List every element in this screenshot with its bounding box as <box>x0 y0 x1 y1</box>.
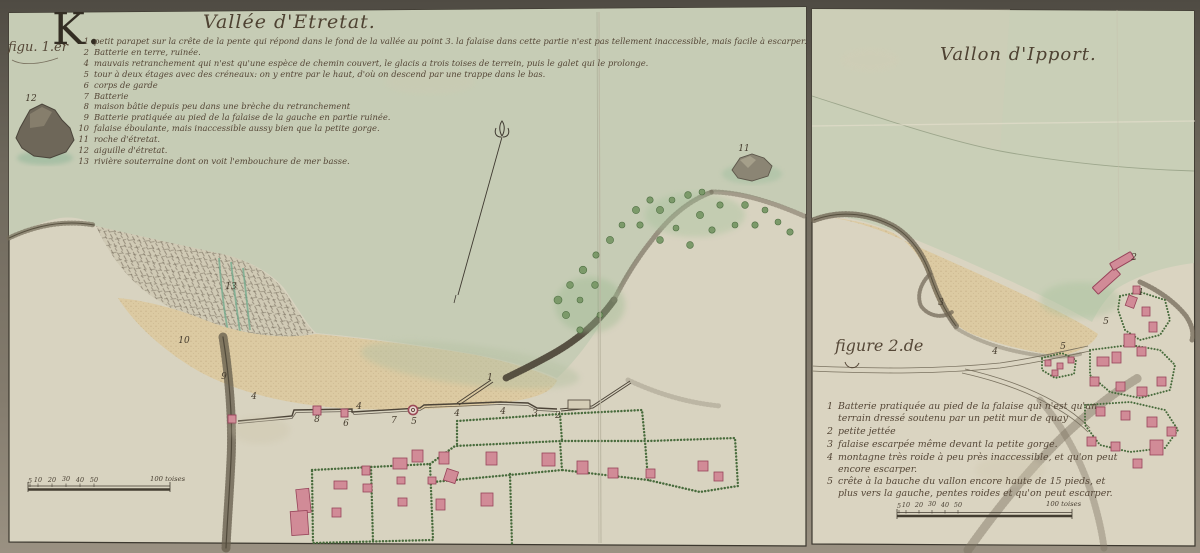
legend-item: 7Batterie <box>74 91 764 102</box>
legend-item: 1petit parapet sur la crête de la pente … <box>74 36 764 47</box>
scale-tick-label: 10 <box>902 501 910 509</box>
map-point-label: 6 <box>343 419 349 429</box>
figure2-label: figure 2.de <box>835 336 923 355</box>
map-point-label: 12 <box>25 94 36 104</box>
map-photograph: K. figu. 1.er Vallée d'Etretat. Vallon d… <box>0 0 1200 553</box>
legend-item: 10falaise éboulante, mais inaccessible a… <box>74 123 764 134</box>
map-point-label: 1 <box>487 373 493 383</box>
map-point-label: 9 <box>221 372 227 382</box>
map-point-label: 7 <box>391 416 397 426</box>
legend-item: 11roche d'étretat. <box>74 134 764 145</box>
map-point-label: 5 <box>411 417 417 427</box>
map-point-label: 5 <box>1103 317 1109 327</box>
legend-item: 5crête à la bauche du vallon encore haut… <box>822 476 1124 500</box>
scale-tick-label: 50 <box>90 476 98 484</box>
right-map-title: Vallon d'Ipport. <box>940 44 1097 65</box>
scale-end-label: 100 toises <box>150 475 185 483</box>
legend-item: 4mauvais retranchement qui n'est qu'une … <box>74 58 764 69</box>
scale-end-label: 100 toises <box>1046 500 1081 508</box>
legend-item: 4montagne très roide à peu près inaccess… <box>822 452 1124 476</box>
map-point-label: 5 <box>1060 342 1066 352</box>
scale-tick-label: 20 <box>48 476 56 484</box>
scale-tick-label: 20 <box>915 501 923 509</box>
scale-tick-label: 5 <box>28 477 32 485</box>
legend-item: 9Batterie pratiquée au pied de la falais… <box>74 112 764 123</box>
tower-5 <box>408 405 417 414</box>
map-point-label: 3 <box>938 298 944 308</box>
map-point-label: 10 <box>178 336 189 346</box>
scale-tick-label: 5 <box>897 502 901 510</box>
legend-item: 12aiguille d'étretat. <box>74 145 764 156</box>
map-point-label: 2 <box>555 411 561 421</box>
map-point-label: 4 <box>356 402 362 412</box>
map-point-label: 13 <box>225 282 236 292</box>
legend-item: 5tour à deux étages avec des créneaux: o… <box>74 69 764 80</box>
figure1-label: figu. 1.er <box>8 40 68 55</box>
scale-tick-label: 30 <box>928 500 936 508</box>
left-map-legend: 1petit parapet sur la crête de la pente … <box>74 36 764 167</box>
left-map-title: Vallée d'Etretat. <box>203 11 376 33</box>
map-point-label: 4 <box>500 407 506 417</box>
scale-tick-label: 40 <box>941 501 949 509</box>
map-point-label: 2 <box>1131 253 1137 263</box>
map-point-label: 3 <box>532 409 538 419</box>
scale-tick-label: 30 <box>62 475 70 483</box>
map-point-label: 4 <box>992 347 998 357</box>
map-point-label: 1 <box>1138 288 1144 298</box>
legend-item: 8maison bâtie depuis peu dans une brèche… <box>74 101 764 112</box>
right-map-legend: 1Batterie pratiquée au pied de la falais… <box>822 401 1124 501</box>
legend-item: 6corps de garde <box>74 80 764 91</box>
legend-item: 2Batterie en terre, ruinée. <box>74 47 764 58</box>
legend-item: 3falaise escarpée même devant la petite … <box>822 439 1124 451</box>
legend-item: 1Batterie pratiquée au pied de la falais… <box>822 401 1124 425</box>
scale-tick-label: 50 <box>954 501 962 509</box>
map-point-label: 4 <box>251 392 257 402</box>
legend-item: 2petite jettée <box>822 426 1124 438</box>
legend-item: 13rivière souterraine dont on voit l'emb… <box>74 156 764 167</box>
map-point-label: 4 <box>454 409 460 419</box>
scale-tick-label: 40 <box>76 476 84 484</box>
map-point-label: 11 <box>738 144 749 154</box>
scale-tick-label: 10 <box>34 476 42 484</box>
map-point-label: 8 <box>314 415 320 425</box>
